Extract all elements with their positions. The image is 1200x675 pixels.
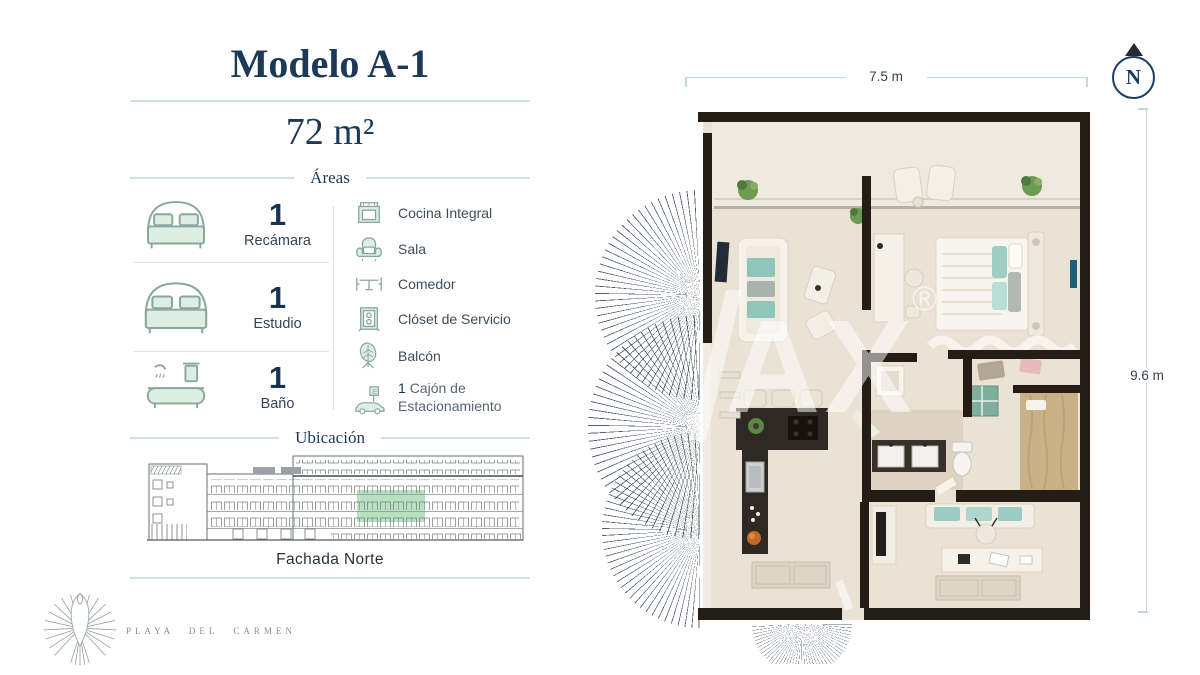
balcony-railing [714, 206, 1084, 209]
double-bed-icon [130, 196, 222, 252]
toilet [952, 442, 972, 476]
parking-line2: Estacionamiento [398, 398, 502, 414]
bed [936, 232, 1044, 336]
amenity-closet: Clóset de Servicio [352, 305, 542, 333]
width-dimension-label: 7.5 m [845, 69, 927, 84]
stat-label: Recámara [222, 233, 333, 249]
page-title: Modelo A-1 [130, 40, 530, 87]
areas-heading: Áreas [310, 168, 350, 188]
rug [752, 562, 830, 588]
divider [130, 177, 294, 179]
stat-count: 1 [222, 282, 333, 313]
amenity-label: Comedor [398, 276, 456, 292]
headboard [1028, 232, 1044, 336]
total-area: 72 m² [130, 110, 530, 154]
north-arrow-icon [1125, 43, 1143, 56]
stat-row-bano: 1 Baño [130, 352, 333, 416]
wall-art [1070, 260, 1077, 288]
amenity-sala: Sala [352, 236, 542, 262]
brand-name: PLAYA DEL CARMEN [126, 626, 296, 636]
amenities-list: Cocina Integral Sala Comedor [352, 199, 542, 424]
amenity-label: 1 Cajón de Estacionamiento [398, 379, 502, 415]
stove-icon [352, 199, 386, 227]
stats-column: 1 Recámara 1 Estudio [130, 192, 333, 416]
amenity-label: Cocina Integral [398, 205, 492, 221]
height-dimension-label: 9.6 m [1118, 368, 1176, 383]
dimension-tick [685, 77, 687, 87]
tv-console [872, 506, 896, 564]
facade-caption: Fachada Norte [130, 551, 530, 569]
towel [1026, 400, 1046, 410]
divider [333, 206, 334, 410]
brand-bird-logo [30, 566, 130, 672]
palm-frond-decoration [752, 624, 852, 664]
watermark: AX ® [690, 280, 937, 440]
divider [366, 177, 530, 179]
ubicacion-heading: Ubicación [295, 428, 365, 448]
stat-label: Baño [222, 396, 333, 412]
divider [130, 577, 530, 579]
stat-count: 1 [222, 362, 333, 393]
stat-row-estudio: 1 Estudio [130, 263, 333, 351]
closet-icon [352, 305, 386, 333]
palm-frond-decoration [602, 432, 700, 628]
shower [1020, 393, 1078, 490]
rug [936, 576, 1020, 600]
bird-body [71, 594, 89, 647]
watermark-text: AX [725, 293, 916, 440]
divider [130, 437, 279, 439]
dining-table-icon [352, 272, 386, 296]
stat-count: 1 [222, 199, 333, 230]
stat-row-recamara: 1 Recámara [130, 192, 333, 262]
handbag [977, 360, 1005, 380]
amenity-label: Balcón [398, 348, 441, 364]
desk-chair [976, 524, 996, 544]
building-elevation-drawing [145, 452, 525, 548]
plant-leaf-icon [352, 342, 386, 370]
areas-heading-row: Áreas [130, 168, 530, 188]
parking-sign-letter: E [372, 387, 377, 396]
stat-label: Estudio [222, 316, 333, 332]
amenity-balcon: Balcón [352, 342, 542, 370]
bathroom-vanity [872, 440, 946, 472]
car-icon: E [352, 385, 386, 415]
height-dimension-line [1146, 108, 1147, 612]
amenity-label: Sala [398, 241, 426, 257]
bathtub-icon [130, 360, 222, 414]
amenity-cocina: Cocina Integral [352, 199, 542, 227]
kitchen-counter [742, 450, 768, 554]
double-bed-icon [130, 276, 222, 338]
divider [381, 437, 530, 439]
amenity-comedor: Comedor [352, 271, 542, 296]
handbag [1019, 358, 1042, 375]
studio-sofa [926, 504, 1034, 528]
north-compass: N [1112, 56, 1155, 99]
amenity-estacionamiento: E 1 Cajón de Estacionamiento [352, 379, 542, 415]
armchair-icon [352, 236, 386, 262]
amenity-label: Clóset de Servicio [398, 311, 511, 327]
dimension-tick [1138, 611, 1148, 613]
divider [130, 100, 530, 102]
dimension-tick [1086, 77, 1088, 87]
parking-line1: Cajón de [410, 380, 466, 396]
ubicacion-heading-row: Ubicación [130, 428, 530, 448]
watermark-reg-mark: ® [912, 280, 937, 318]
parking-count: 1 [398, 380, 406, 396]
floorplan-render: AX ® [690, 110, 1100, 625]
dimension-tick [1138, 108, 1148, 110]
